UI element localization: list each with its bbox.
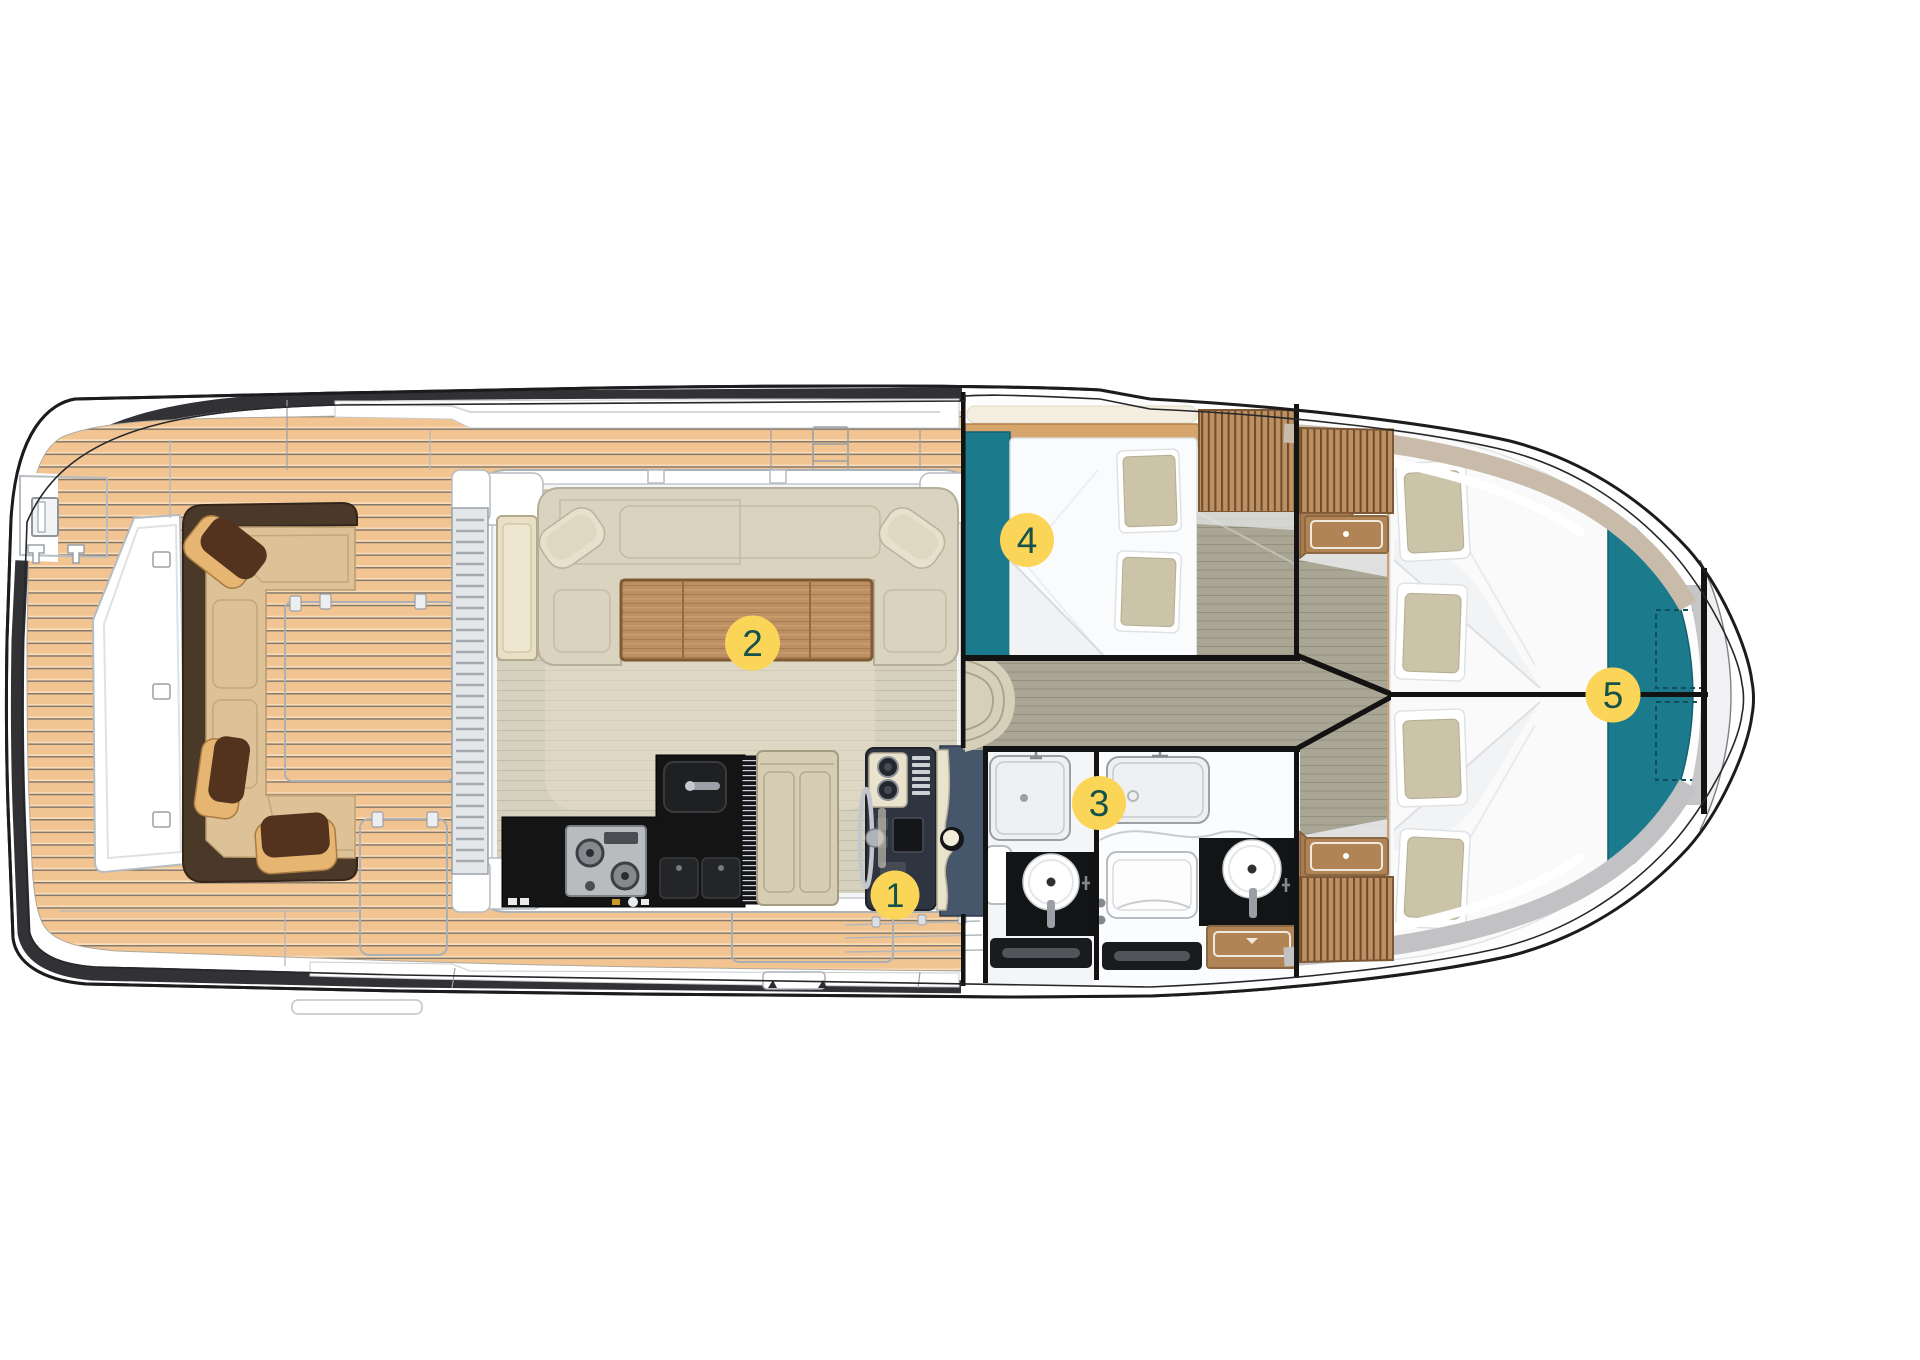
svg-text:2: 2 (742, 623, 763, 664)
svg-text:3: 3 (1089, 783, 1110, 824)
svg-text:1: 1 (886, 877, 905, 915)
svg-text:4: 4 (1017, 520, 1038, 561)
svg-text:5: 5 (1603, 675, 1624, 716)
